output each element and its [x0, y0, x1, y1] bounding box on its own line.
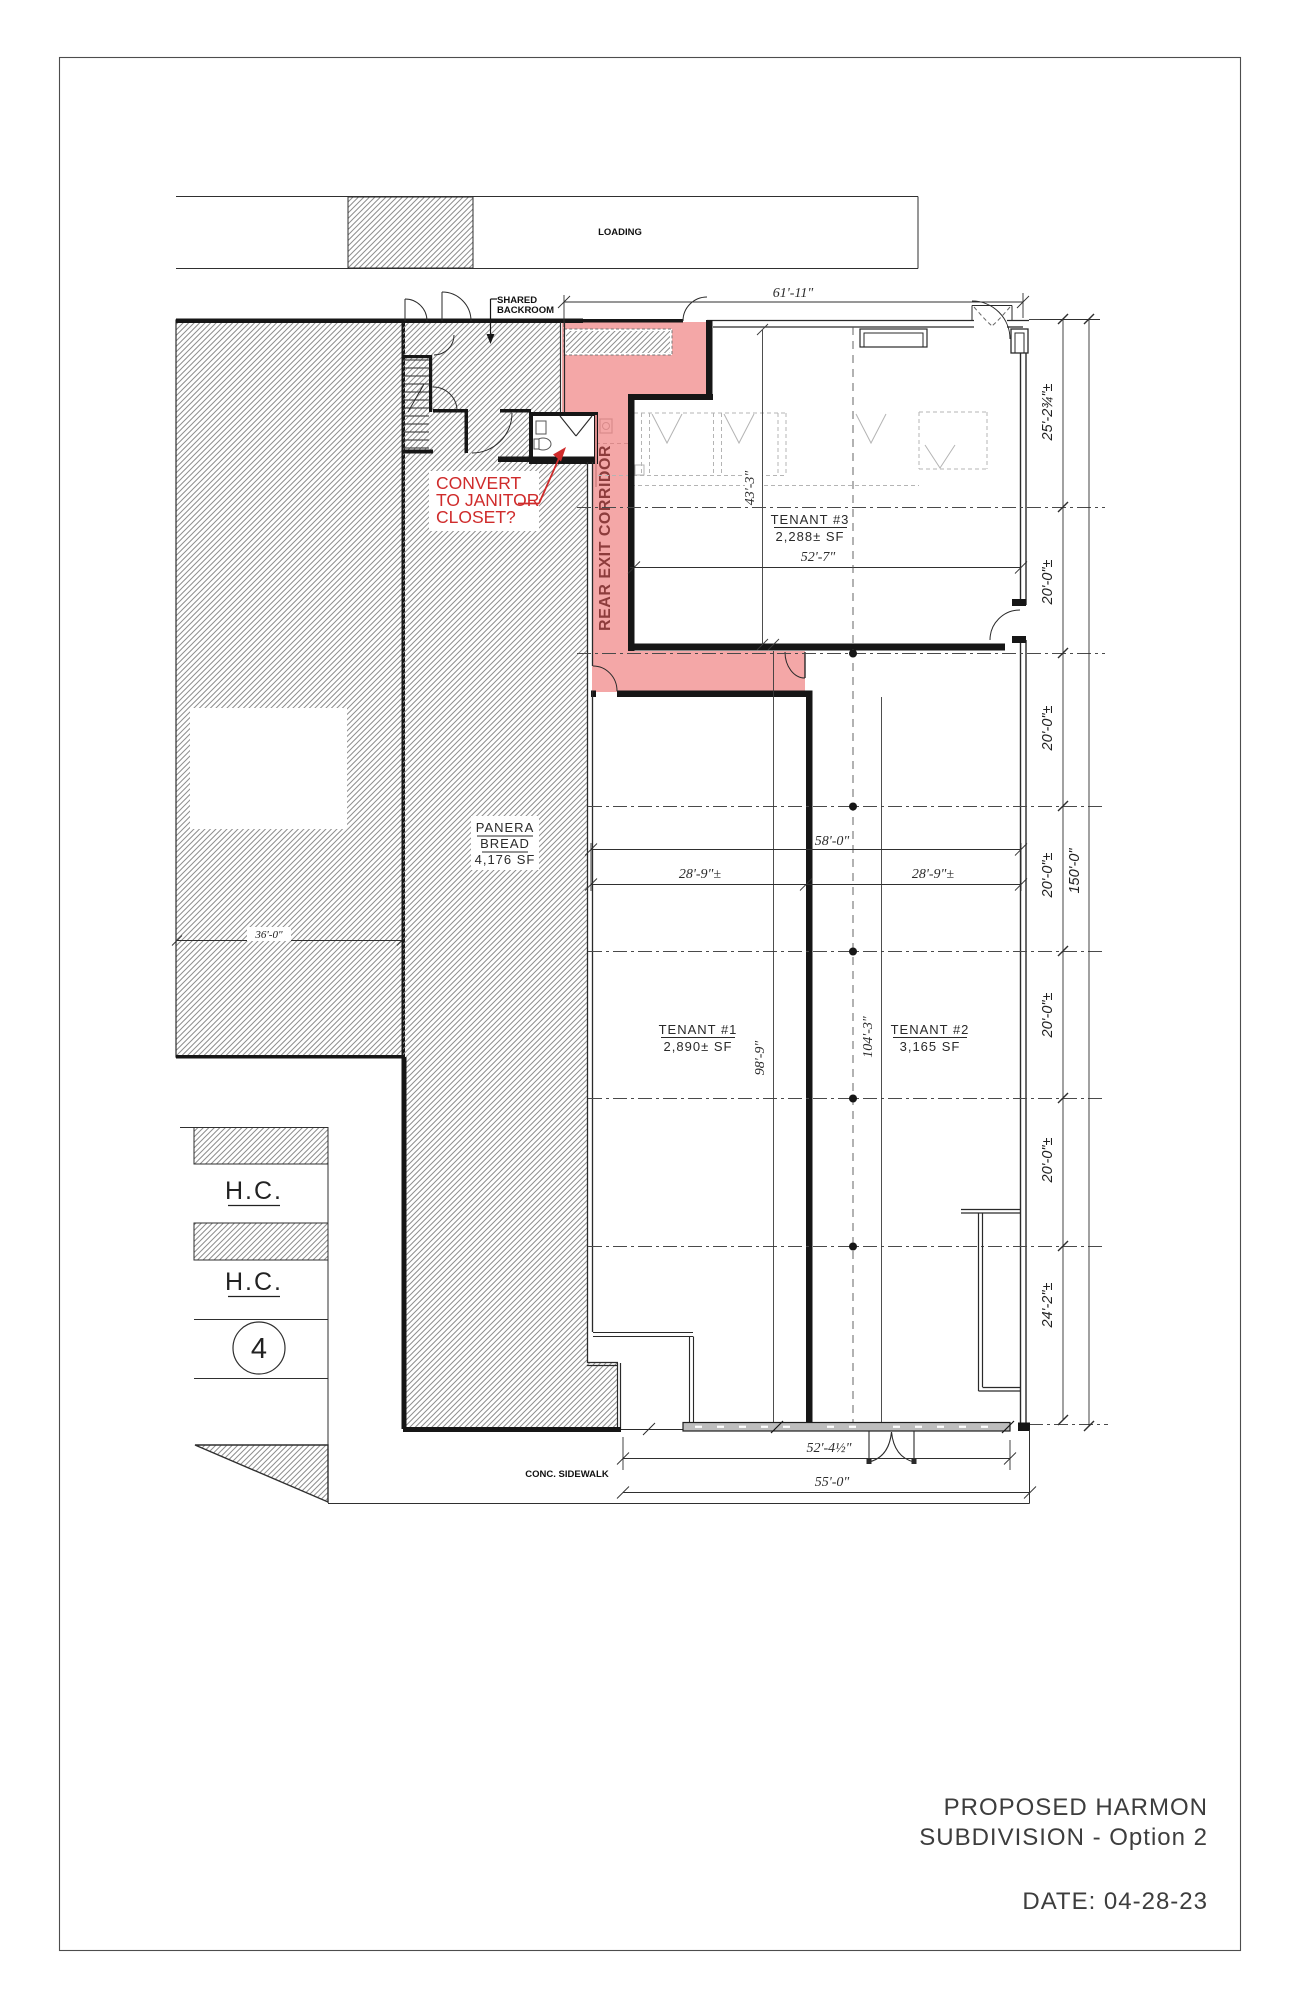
svg-text:PROPOSED HARMON: PROPOSED HARMON	[944, 1794, 1208, 1821]
svg-text:H.C.: H.C.	[225, 1177, 283, 1205]
svg-text:REAR EXIT CORRIDOR: REAR EXIT CORRIDOR	[597, 445, 614, 631]
svg-text:25'-2¾"±: 25'-2¾"±	[1040, 383, 1056, 441]
svg-text:CONC. SIDEWALK: CONC. SIDEWALK	[525, 1469, 609, 1480]
svg-text:61'-11": 61'-11"	[773, 286, 814, 301]
svg-text:TENANT #1: TENANT #1	[659, 1022, 738, 1037]
svg-text:PANERA: PANERA	[476, 820, 535, 835]
svg-text:20'-0"±: 20'-0"±	[1040, 560, 1056, 606]
svg-text:4: 4	[251, 1333, 267, 1365]
svg-text:58'-0": 58'-0"	[815, 834, 850, 849]
svg-text:TENANT #2: TENANT #2	[891, 1022, 970, 1037]
svg-text:43'-3": 43'-3"	[743, 471, 758, 506]
svg-text:TENANT #3: TENANT #3	[771, 512, 850, 527]
svg-text:52'-4½": 52'-4½"	[806, 1441, 851, 1456]
svg-text:2,288± SF: 2,288± SF	[776, 529, 845, 544]
svg-text:3,165 SF: 3,165 SF	[900, 1039, 961, 1054]
svg-text:52'-7": 52'-7"	[801, 550, 836, 565]
svg-text:CLOSET?: CLOSET?	[436, 507, 516, 527]
svg-text:28'-9"±: 28'-9"±	[912, 867, 955, 882]
svg-text:BACKROOM: BACKROOM	[497, 305, 554, 316]
svg-text:36'-0": 36'-0"	[254, 929, 283, 941]
svg-text:2,890± SF: 2,890± SF	[664, 1039, 733, 1054]
svg-text:DATE: 04-28-23: DATE: 04-28-23	[1022, 1888, 1208, 1915]
svg-text:104'-3": 104'-3"	[861, 1016, 876, 1058]
svg-text:20'-0"±: 20'-0"±	[1040, 1138, 1056, 1184]
svg-text:98'-9": 98'-9"	[753, 1041, 768, 1076]
svg-text:24'-2"±: 24'-2"±	[1040, 1283, 1056, 1329]
svg-text:28'-9"±: 28'-9"±	[679, 867, 722, 882]
svg-text:150'-0": 150'-0"	[1067, 848, 1083, 894]
svg-text:20'-0"±: 20'-0"±	[1040, 853, 1056, 899]
svg-text:55'-0": 55'-0"	[815, 1475, 850, 1490]
svg-text:20'-0"±: 20'-0"±	[1040, 706, 1056, 752]
svg-text:LOADING: LOADING	[598, 227, 642, 238]
svg-text:H.C.: H.C.	[225, 1268, 283, 1296]
svg-text:BREAD: BREAD	[480, 836, 530, 851]
svg-text:SUBDIVISION - Option 2: SUBDIVISION - Option 2	[919, 1824, 1208, 1851]
svg-text:20'-0"±: 20'-0"±	[1040, 993, 1056, 1039]
svg-text:4,176 SF: 4,176 SF	[475, 852, 536, 867]
